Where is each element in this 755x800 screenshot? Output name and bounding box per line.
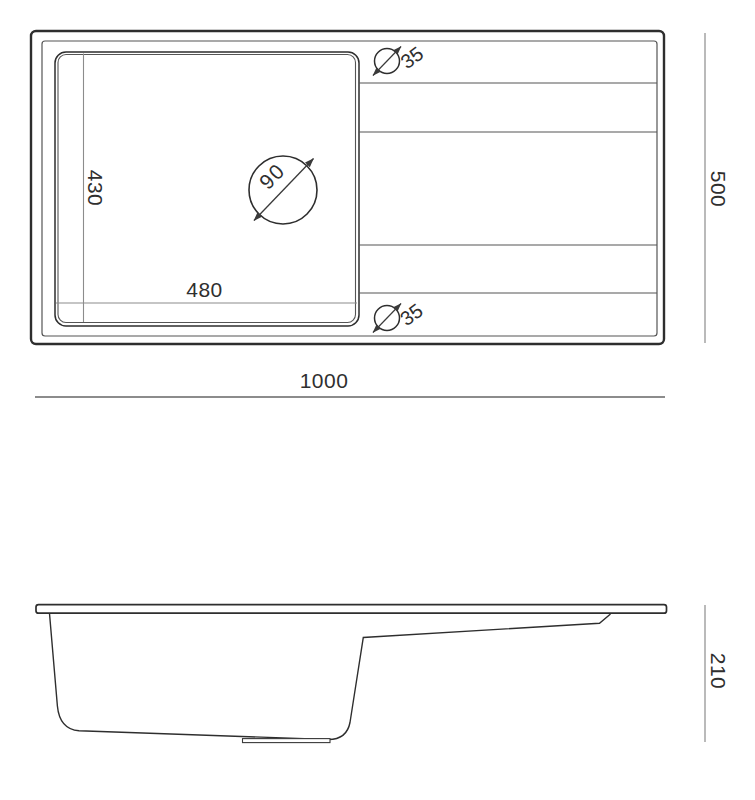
dim-label-1000: 1000 [300, 369, 349, 392]
dim-label-210: 210 [707, 653, 730, 690]
tap-hole-bottom-diameter-arrow [373, 304, 401, 333]
sink-outline [31, 31, 664, 344]
top-view: 90 35 35 430 480 500 [31, 31, 730, 397]
tap-hole-top: 35 [373, 42, 427, 75]
rim-inner-edge [42, 41, 657, 336]
dim-bowl-depth: 430 [84, 54, 107, 323]
dim-label-480: 480 [186, 278, 223, 301]
dim-overall-width: 1000 [35, 369, 665, 398]
sink-technical-drawing: 90 35 35 430 480 500 [0, 0, 755, 800]
dim-label-430: 430 [84, 170, 107, 207]
drawing-canvas: 90 35 35 430 480 500 [0, 0, 755, 800]
rim-profile [36, 605, 667, 614]
bowl-profile [50, 614, 611, 740]
dim-overall-depth: 500 [705, 33, 730, 343]
drain-hole: 90 [249, 156, 317, 224]
tap-hole-bottom: 35 [373, 299, 427, 332]
drain-boss [243, 739, 331, 743]
dim-label-500: 500 [707, 171, 730, 208]
dim-overall-height: 210 [705, 605, 730, 742]
dim-bowl-width: 480 [56, 278, 357, 304]
side-view: 210 [36, 605, 730, 743]
tap-hole-top-diameter-arrow [373, 47, 401, 76]
